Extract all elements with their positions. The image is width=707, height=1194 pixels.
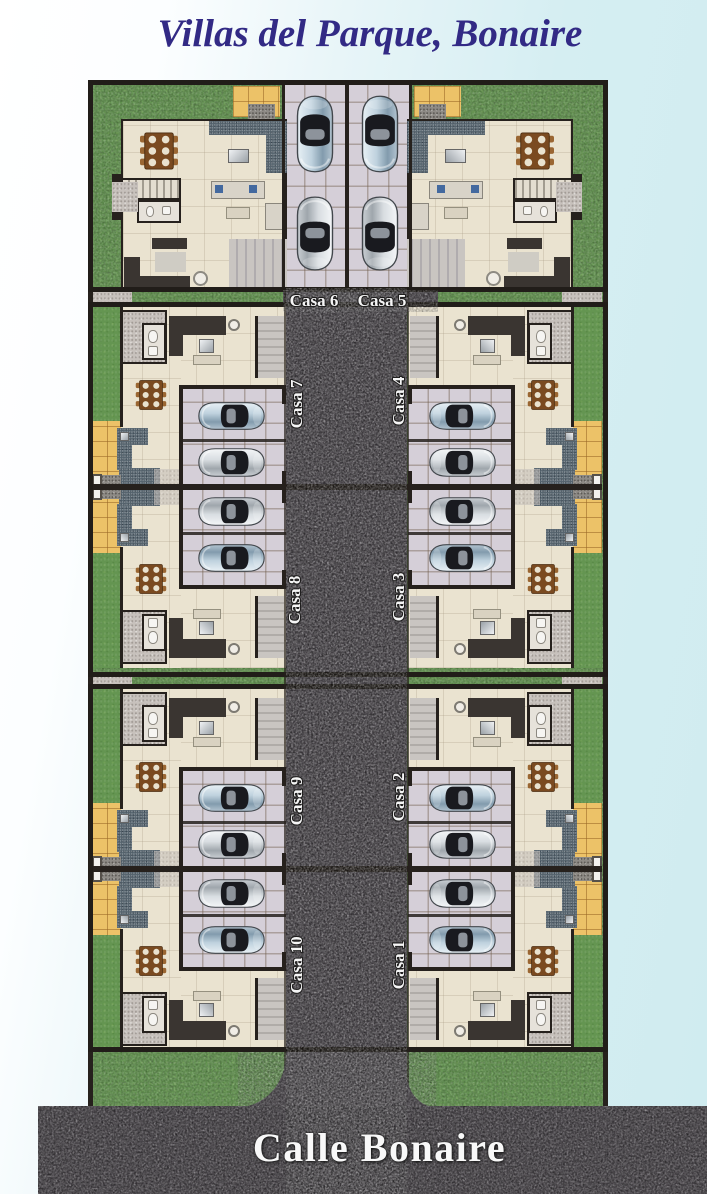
svg-text:Casa 5: Casa 5 bbox=[358, 291, 407, 310]
svg-text:Casa 9: Casa 9 bbox=[287, 777, 306, 826]
svg-text:Casa 4: Casa 4 bbox=[389, 376, 408, 425]
svg-text:Casa 3: Casa 3 bbox=[389, 573, 408, 622]
svg-text:Casa 7: Casa 7 bbox=[287, 379, 306, 428]
svg-text:Casa 8: Casa 8 bbox=[285, 576, 304, 625]
svg-text:Casa 6: Casa 6 bbox=[290, 291, 339, 310]
svg-text:Casa 2: Casa 2 bbox=[389, 773, 408, 822]
svg-text:Casa 10: Casa 10 bbox=[287, 936, 306, 993]
svg-text:Casa 1: Casa 1 bbox=[389, 941, 408, 990]
